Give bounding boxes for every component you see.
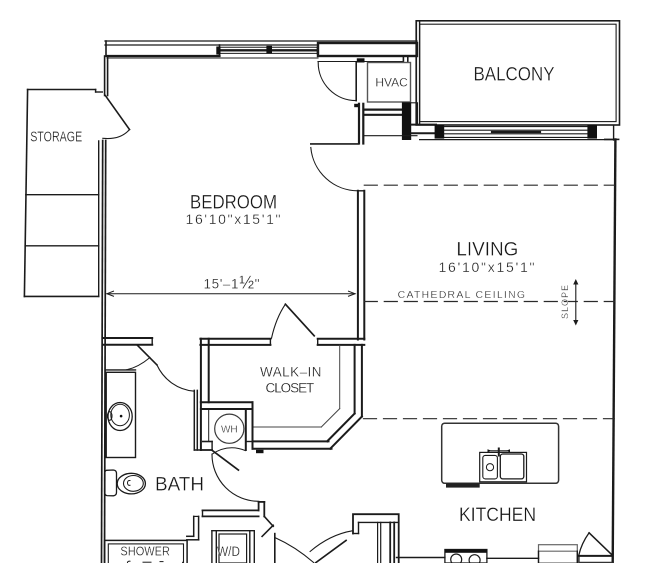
svg-text:LIVING: LIVING <box>456 240 518 261</box>
svg-text:STORAGE: STORAGE <box>30 130 82 146</box>
svg-text:KITCHEN: KITCHEN <box>459 505 536 526</box>
svg-text:WH: WH <box>221 425 238 436</box>
svg-text:WALK–IN: WALK–IN <box>260 365 322 380</box>
svg-text:SLOPE: SLOPE <box>560 285 570 319</box>
svg-text:SHOWER: SHOWER <box>120 544 170 559</box>
svg-text:HVAC: HVAC <box>375 76 408 90</box>
svg-text:CATHEDRAL CEILING: CATHEDRAL CEILING <box>398 289 525 301</box>
svg-text:CLOSET: CLOSET <box>266 381 315 396</box>
svg-text:W/D: W/D <box>217 543 240 559</box>
svg-text:BATH: BATH <box>155 475 204 496</box>
svg-text:BALCONY: BALCONY <box>474 65 555 86</box>
